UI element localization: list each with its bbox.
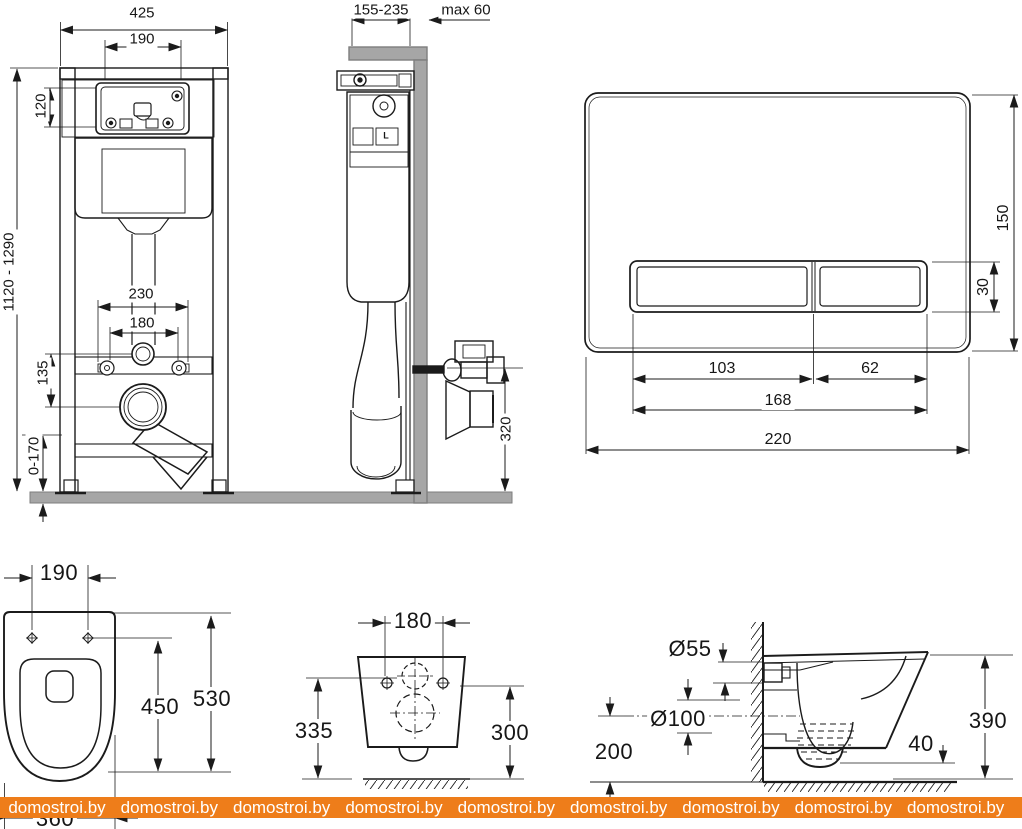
dim-service-opening-height: 120	[33, 90, 50, 121]
bowl-top-view	[4, 612, 115, 781]
dim-fixing-spacing-inner: 180	[126, 315, 157, 332]
dim-bowl-inner-length: 450	[138, 695, 182, 719]
watermark-text: domostroi.by	[795, 798, 892, 818]
watermark-text: domostroi.by	[570, 798, 667, 818]
watermark-text: domostroi.by	[345, 798, 442, 818]
flush-button-large	[637, 267, 807, 306]
watermark-text: domostroi.by	[121, 798, 218, 818]
dim-rim-offset: 40	[905, 732, 936, 756]
dim-inlet-diameter: Ø55	[665, 637, 714, 661]
dim-frame-opening-width: 190	[126, 31, 157, 48]
dim-small-button-width: 62	[858, 360, 882, 378]
watermark-text: domostroi.by	[907, 798, 1004, 818]
bowl-back-view	[358, 657, 470, 789]
dim-bowl-total-length: 530	[190, 687, 234, 711]
dim-foot-adjustment: 0-170	[26, 434, 43, 478]
dim-back-left-height: 335	[292, 719, 336, 743]
dim-frame-height-range: 1120 - 1290	[1, 230, 18, 315]
bowl-side-view	[590, 622, 957, 792]
technical-drawing-sheet: 425 190 120 1120 - 1290 230 180 135 0-17…	[0, 0, 1022, 829]
valve-label: L	[383, 132, 389, 141]
watermark-text: domostroi.by	[8, 798, 105, 818]
watermark-text: domostroi.by	[233, 798, 330, 818]
dim-fixing-spacing-outer: 230	[125, 286, 156, 303]
dim-buttons-width: 168	[762, 392, 795, 410]
watermark-text: domostroi.by	[458, 798, 555, 818]
flush-plate-view	[585, 93, 970, 352]
flush-buttons-frame	[630, 261, 927, 312]
dim-button-height: 30	[975, 275, 993, 299]
flush-plate-dimensions	[586, 95, 1018, 454]
dim-back-right-height: 300	[488, 721, 532, 745]
dim-plate-width: 220	[762, 431, 795, 449]
dim-bowl-fixing-spacing: 190	[37, 561, 81, 585]
dim-outlet-axis-height: 200	[592, 740, 636, 764]
dim-frame-total-width: 425	[126, 5, 157, 22]
inlet-spigot	[764, 663, 782, 682]
watermark-text: domostroi.by	[682, 798, 779, 818]
frame-side-view	[337, 47, 504, 503]
dim-bowl-height: 390	[966, 709, 1010, 733]
dim-max-facing: max 60	[438, 2, 493, 19]
flush-button-small	[820, 267, 920, 306]
flush-opening	[46, 671, 73, 702]
dim-large-button-width: 103	[706, 360, 739, 378]
dim-plate-height: 150	[995, 202, 1013, 235]
dim-outlet-diameter: Ø100	[647, 707, 709, 731]
dim-back-fixing-spacing: 180	[391, 609, 435, 633]
floor-slab	[30, 492, 512, 503]
dim-outlet-height: 320	[498, 413, 515, 444]
dim-frame-depth-range: 155-235	[350, 2, 411, 19]
dim-inlet-to-outlet: 135	[35, 357, 52, 388]
bowl-back-dimensions	[302, 616, 524, 779]
frame-front-view	[55, 68, 234, 493]
watermark-strip: domostroi.bydomostroi.bydomostroi.bydomo…	[0, 797, 1022, 818]
